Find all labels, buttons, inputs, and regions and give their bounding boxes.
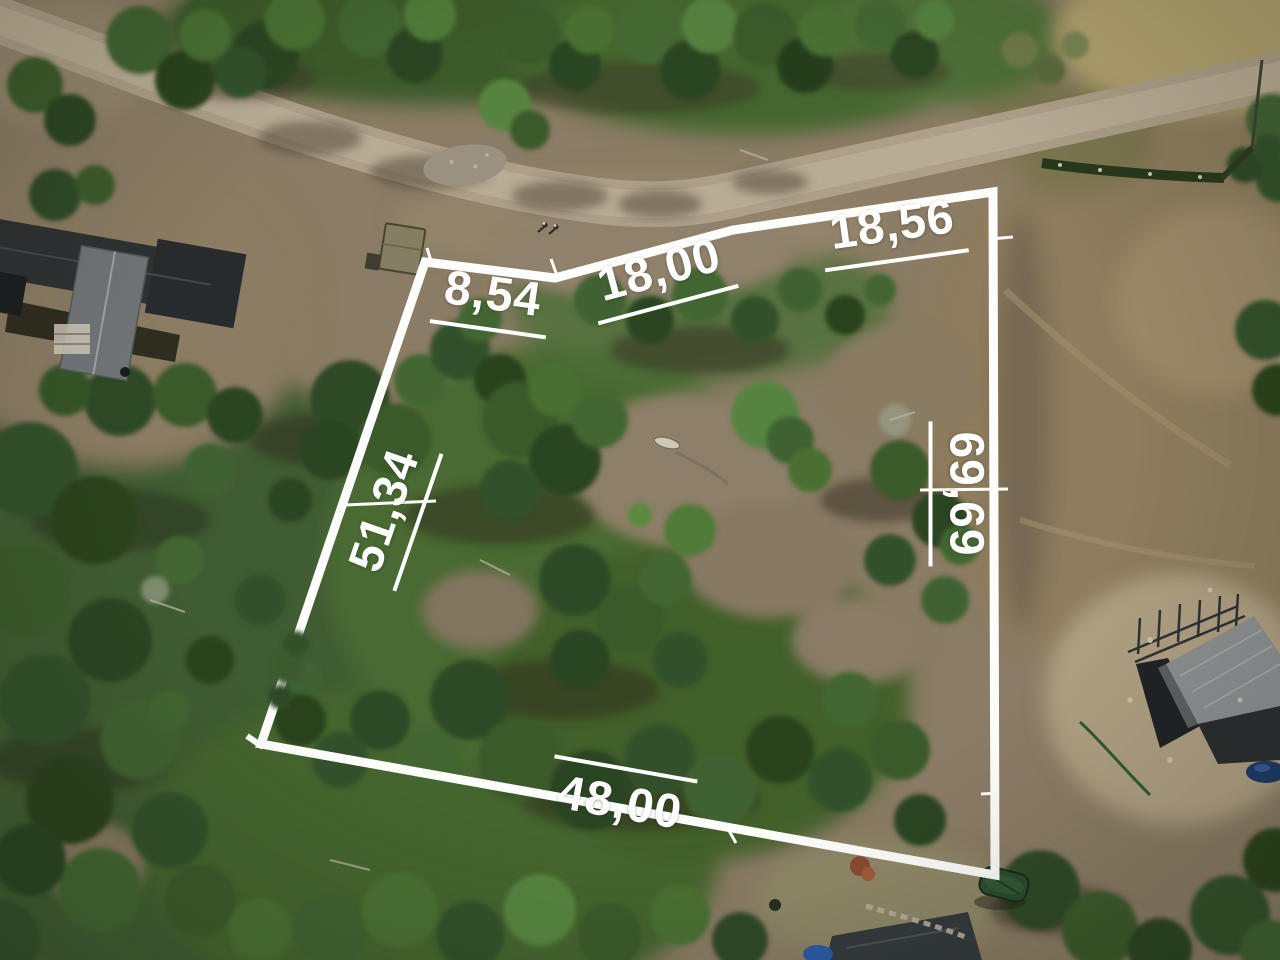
aerial-photo: 8,54 18,00 18,56 51,34 69,69 48,00: [0, 0, 1280, 960]
vignette: [0, 0, 1280, 960]
